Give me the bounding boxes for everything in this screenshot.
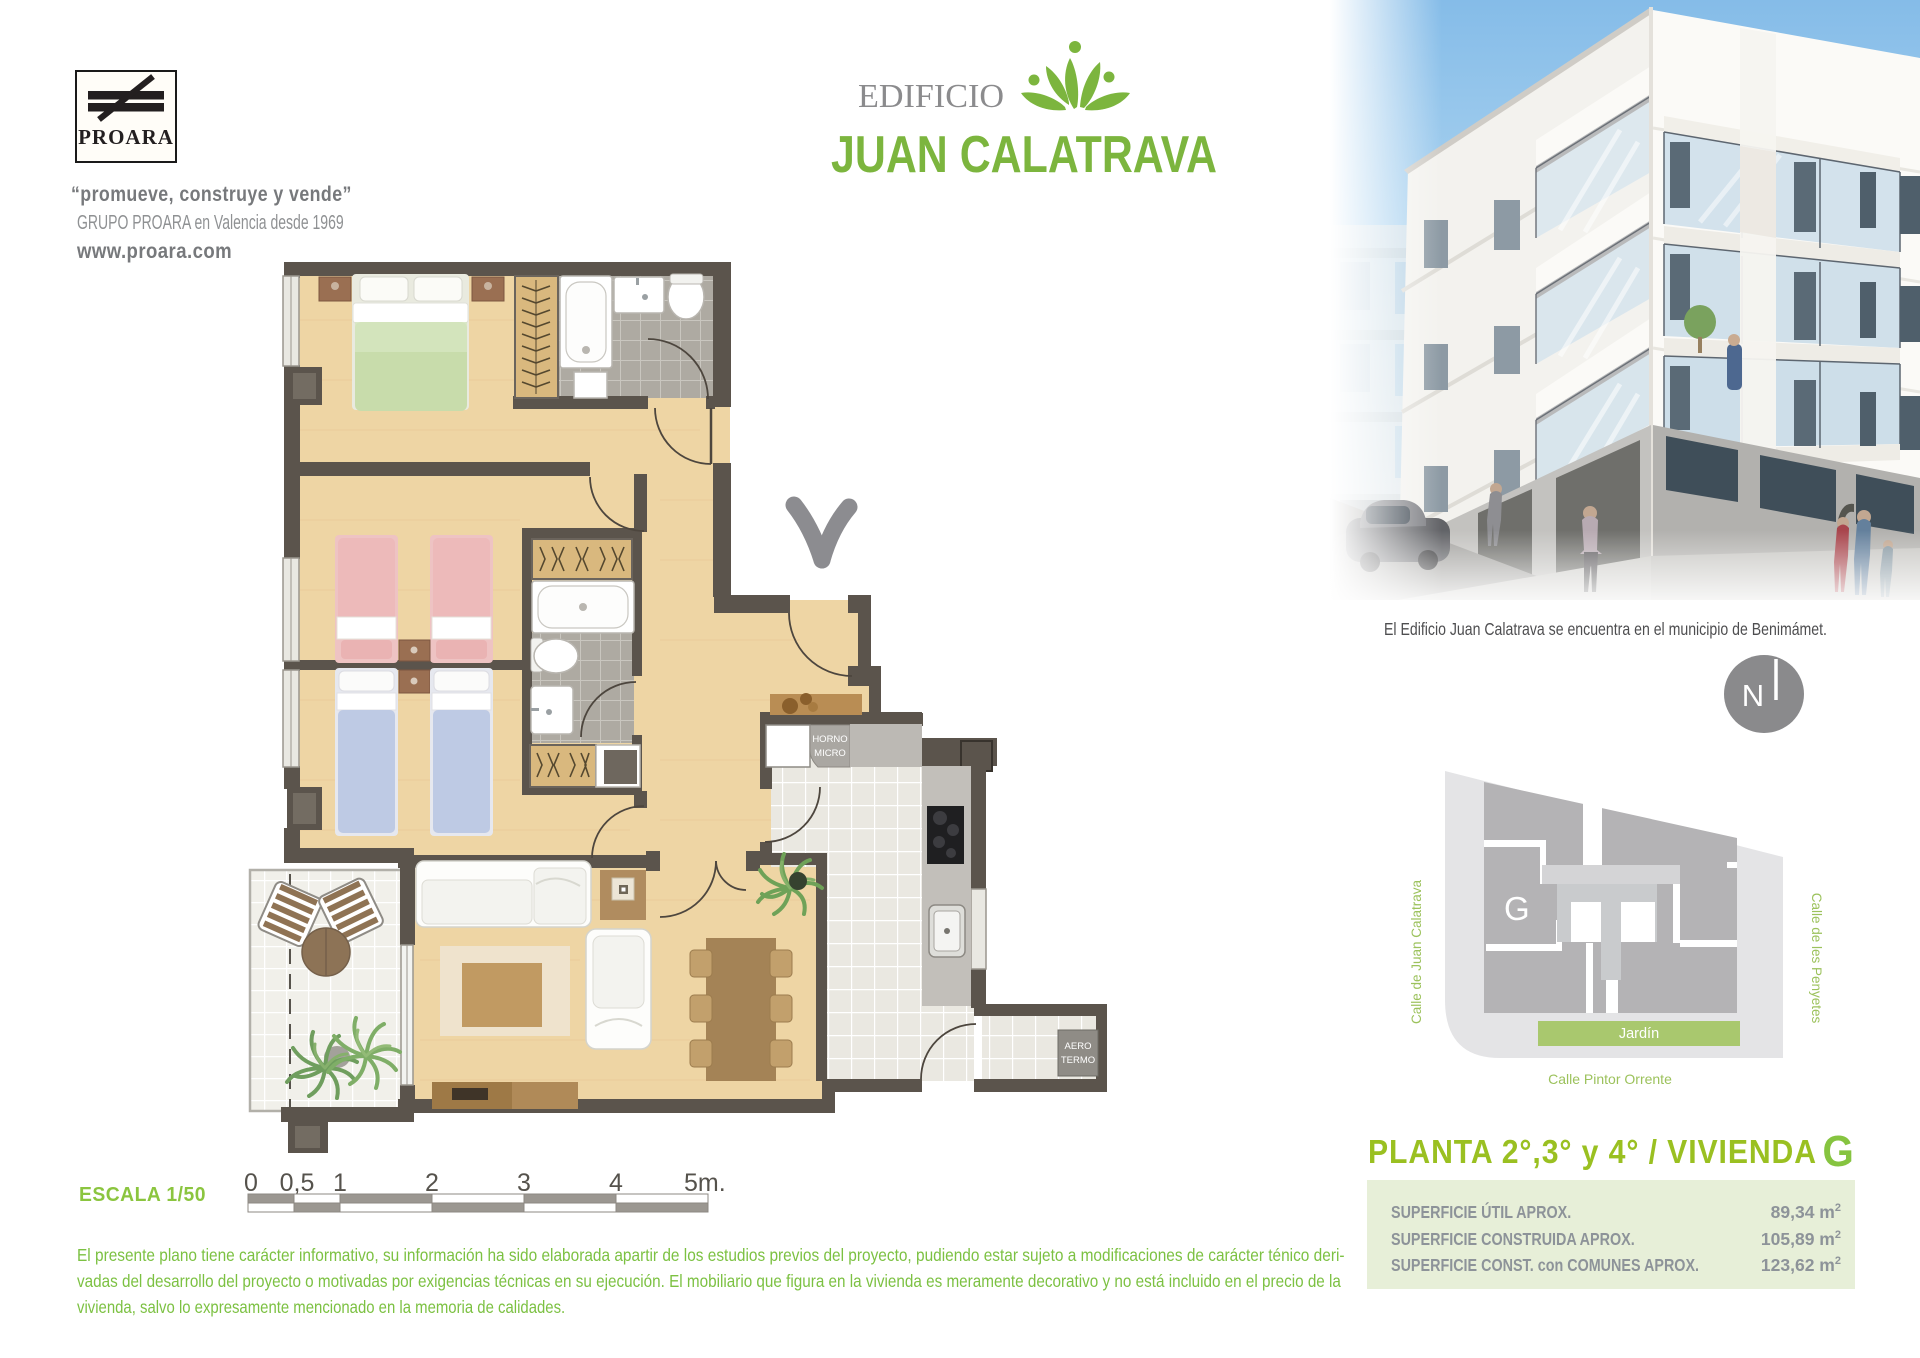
svg-text:N: N <box>1742 678 1764 713</box>
svg-text:G: G <box>1504 890 1530 927</box>
svg-text:AERO: AERO <box>1065 1041 1092 1052</box>
svg-text:1: 1 <box>333 1169 347 1197</box>
svg-text:2: 2 <box>425 1169 439 1197</box>
svg-text:TERMO: TERMO <box>1061 1055 1095 1066</box>
svg-text:HORNO: HORNO <box>812 734 847 745</box>
svg-text:Jardín: Jardín <box>1619 1026 1659 1042</box>
svg-text:5m.: 5m. <box>684 1169 726 1197</box>
svg-text:3: 3 <box>517 1169 531 1197</box>
svg-text:Calle de les Penyetes: Calle de les Penyetes <box>1809 893 1824 1024</box>
svg-text:PROARA: PROARA <box>78 125 174 149</box>
svg-text:0,5: 0,5 <box>280 1169 315 1197</box>
svg-text:4: 4 <box>609 1169 623 1197</box>
svg-text:0: 0 <box>244 1169 258 1197</box>
svg-text:JUAN CALATRAVA: JUAN CALATRAVA <box>831 126 1217 184</box>
svg-text:Calle de Juan Calatrava: Calle de Juan Calatrava <box>1409 879 1424 1024</box>
svg-text:Calle Pintor Orrente: Calle Pintor Orrente <box>1548 1071 1672 1087</box>
svg-text:MICRO: MICRO <box>814 748 846 759</box>
svg-text:EDIFICIO: EDIFICIO <box>858 78 1004 115</box>
